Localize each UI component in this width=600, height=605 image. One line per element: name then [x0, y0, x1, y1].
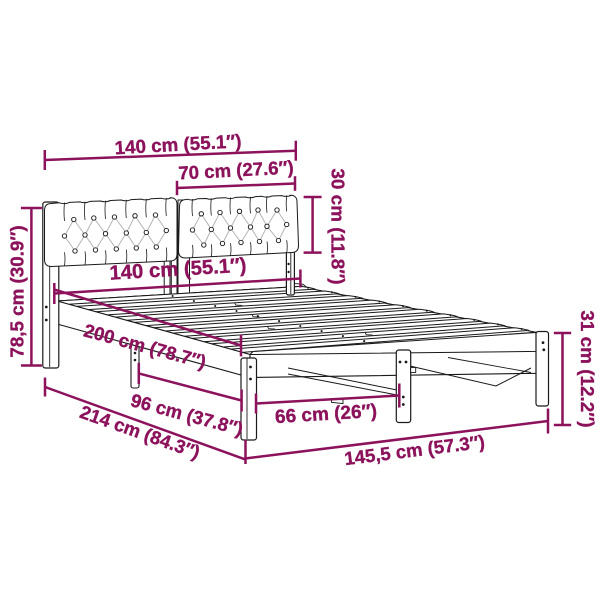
svg-text:66 cm (26″): 66 cm (26″) — [274, 401, 377, 428]
svg-text:78,5 cm (30.9″): 78,5 cm (30.9″) — [7, 225, 28, 357]
svg-text:30 cm (11.8″): 30 cm (11.8″) — [327, 168, 348, 284]
svg-text:31 cm (12.2″): 31 cm (12.2″) — [576, 310, 597, 427]
svg-text:70 cm (27.6″): 70 cm (27.6″) — [178, 156, 294, 183]
